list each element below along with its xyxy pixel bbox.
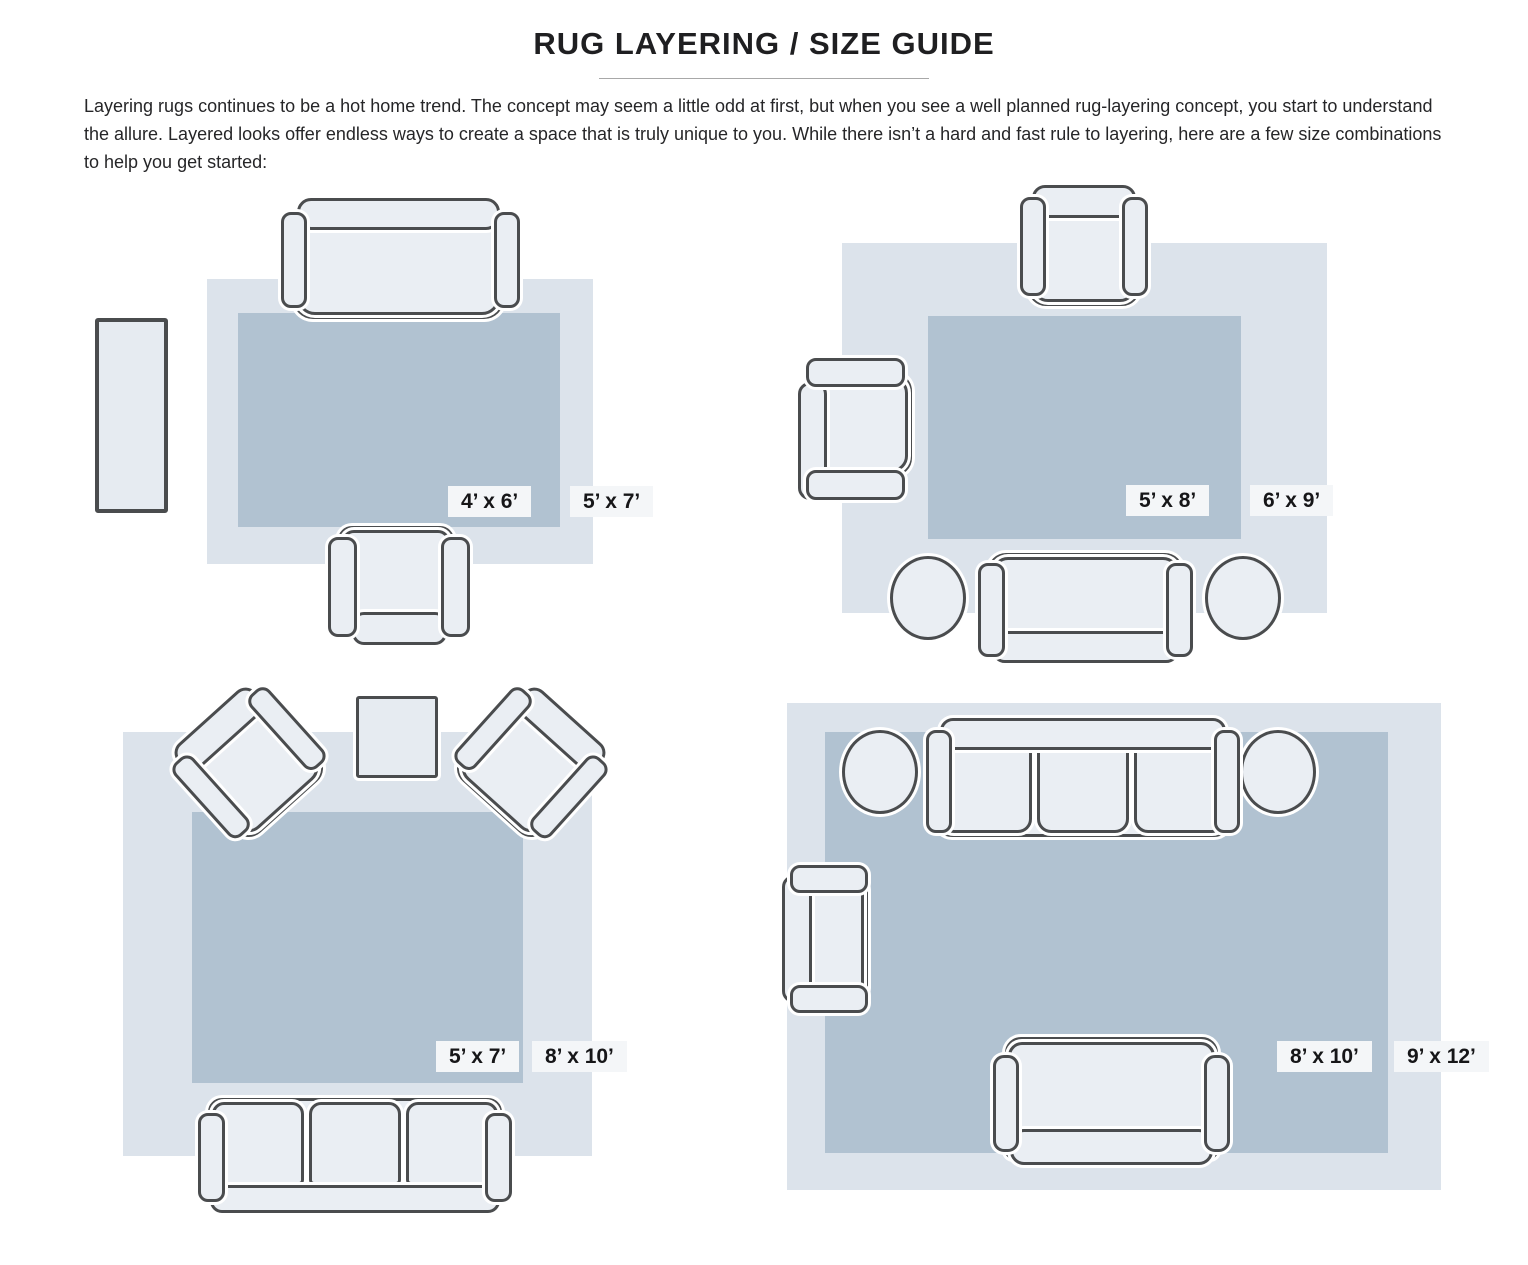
sofa-arm (494, 212, 520, 308)
three-seat-sofa (198, 1102, 512, 1213)
sofa-arm (1166, 563, 1193, 657)
intro-paragraph: Layering rugs continues to be a hot home… (84, 92, 1450, 176)
rug-size-guide-page: RUG LAYERING / SIZE GUIDE Layering rugs … (0, 0, 1528, 1265)
chair-back (782, 875, 812, 1003)
sofa-back (1010, 1129, 1213, 1165)
chair-seat (826, 377, 908, 472)
table-top (95, 318, 168, 513)
sofa-cushion (940, 745, 1032, 833)
inner-rug-size-label: 4’ x 6’ (448, 486, 531, 517)
pouf-top (842, 730, 918, 814)
pouf (1240, 730, 1316, 814)
pouf (1205, 556, 1281, 640)
sofa-cushion (1037, 745, 1129, 833)
chair-seat (1032, 209, 1136, 302)
outer-rug-size-label: 8’ x 10’ (532, 1041, 627, 1072)
chair-back (1032, 185, 1136, 218)
table-top (356, 696, 438, 778)
chair-arm (790, 985, 868, 1013)
pouf-top (1205, 556, 1281, 640)
page-title: RUG LAYERING / SIZE GUIDE (0, 26, 1528, 62)
chair-arm (1020, 197, 1046, 296)
sofa-cushion (309, 1102, 401, 1185)
sofa-arm (993, 1055, 1019, 1152)
loveseat-sofa (993, 1037, 1230, 1165)
three-seat-sofa (926, 718, 1240, 833)
inner-rug-size-label: 8’ x 10’ (1277, 1041, 1372, 1072)
armchair (782, 865, 870, 1013)
pouf-top (890, 556, 966, 640)
pouf-top (1240, 730, 1316, 814)
inner-rug-size-label: 5’ x 8’ (1126, 485, 1209, 516)
pouf (842, 730, 918, 814)
chair-arm (806, 358, 905, 387)
armchair (1020, 185, 1148, 302)
outer-rug-size-label: 9’ x 12’ (1394, 1041, 1489, 1072)
sofa-seat (992, 557, 1179, 637)
pouf (890, 556, 966, 640)
outer-rug-size-label: 5’ x 7’ (570, 486, 653, 517)
sofa-seat (297, 224, 500, 315)
console-table (95, 318, 168, 513)
sofa-arm (198, 1113, 225, 1202)
armchair (798, 358, 910, 500)
armchair (328, 530, 470, 645)
sofa-arm (926, 730, 952, 833)
sofa-back (940, 718, 1226, 750)
chair-arm (806, 470, 905, 500)
chair-arm (328, 537, 357, 637)
sofa-seat (1008, 1042, 1215, 1137)
loveseat-sofa (281, 198, 520, 315)
sofa-back (297, 198, 500, 230)
inner-rug-size-label: 5’ x 7’ (436, 1041, 519, 1072)
sofa-cushion (1134, 745, 1226, 833)
sofa-arm (1214, 730, 1240, 833)
loveseat-sofa (978, 557, 1193, 663)
chair-arm (790, 865, 868, 893)
outer-rug-size-label: 6’ x 9’ (1250, 485, 1333, 516)
title-divider (599, 78, 929, 79)
sofa-back (992, 631, 1179, 663)
chair-arm (1122, 197, 1148, 296)
sofa-back (210, 1185, 500, 1213)
sofa-arm (978, 563, 1005, 657)
sofa-cushion (212, 1102, 304, 1185)
sofa-arm (281, 212, 307, 308)
chair-back (352, 612, 447, 645)
sofa-arm (485, 1113, 512, 1202)
chair-arm (441, 537, 470, 637)
sofa-arm (1204, 1055, 1230, 1152)
round-table (356, 696, 438, 778)
